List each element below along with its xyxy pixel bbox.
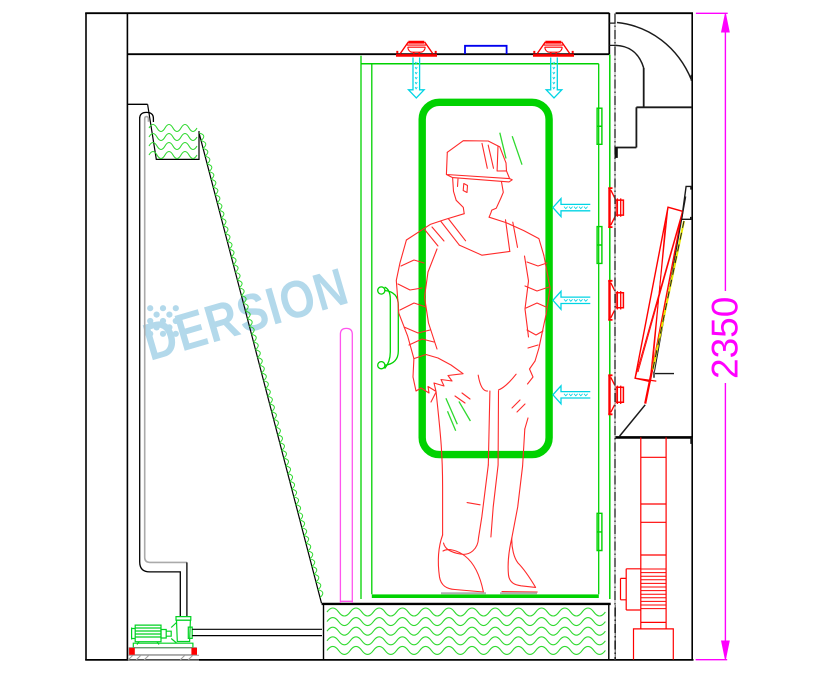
- svg-text:2350: 2350: [705, 297, 746, 379]
